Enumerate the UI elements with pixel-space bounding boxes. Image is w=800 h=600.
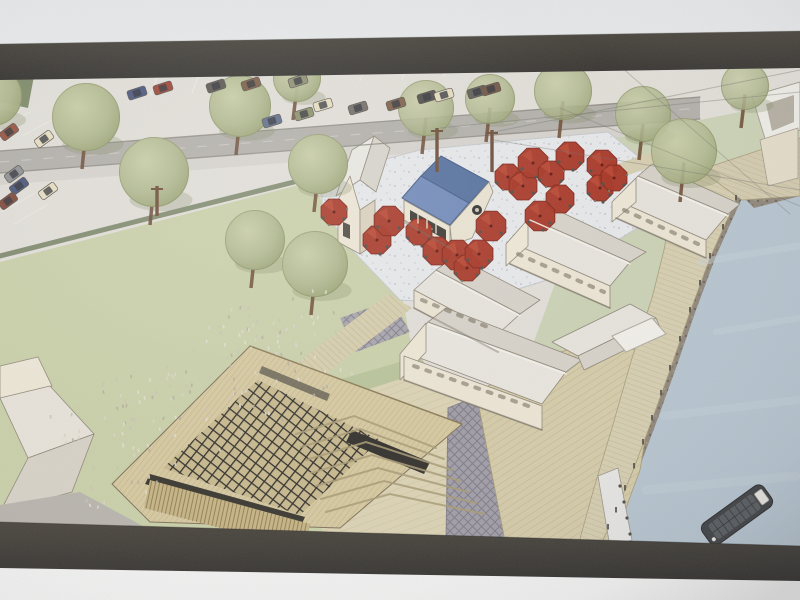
photo-vignette-overlay: [0, 0, 800, 600]
photographed-site-rendering: [0, 0, 800, 600]
architectural-rendering-photo: [0, 0, 800, 600]
